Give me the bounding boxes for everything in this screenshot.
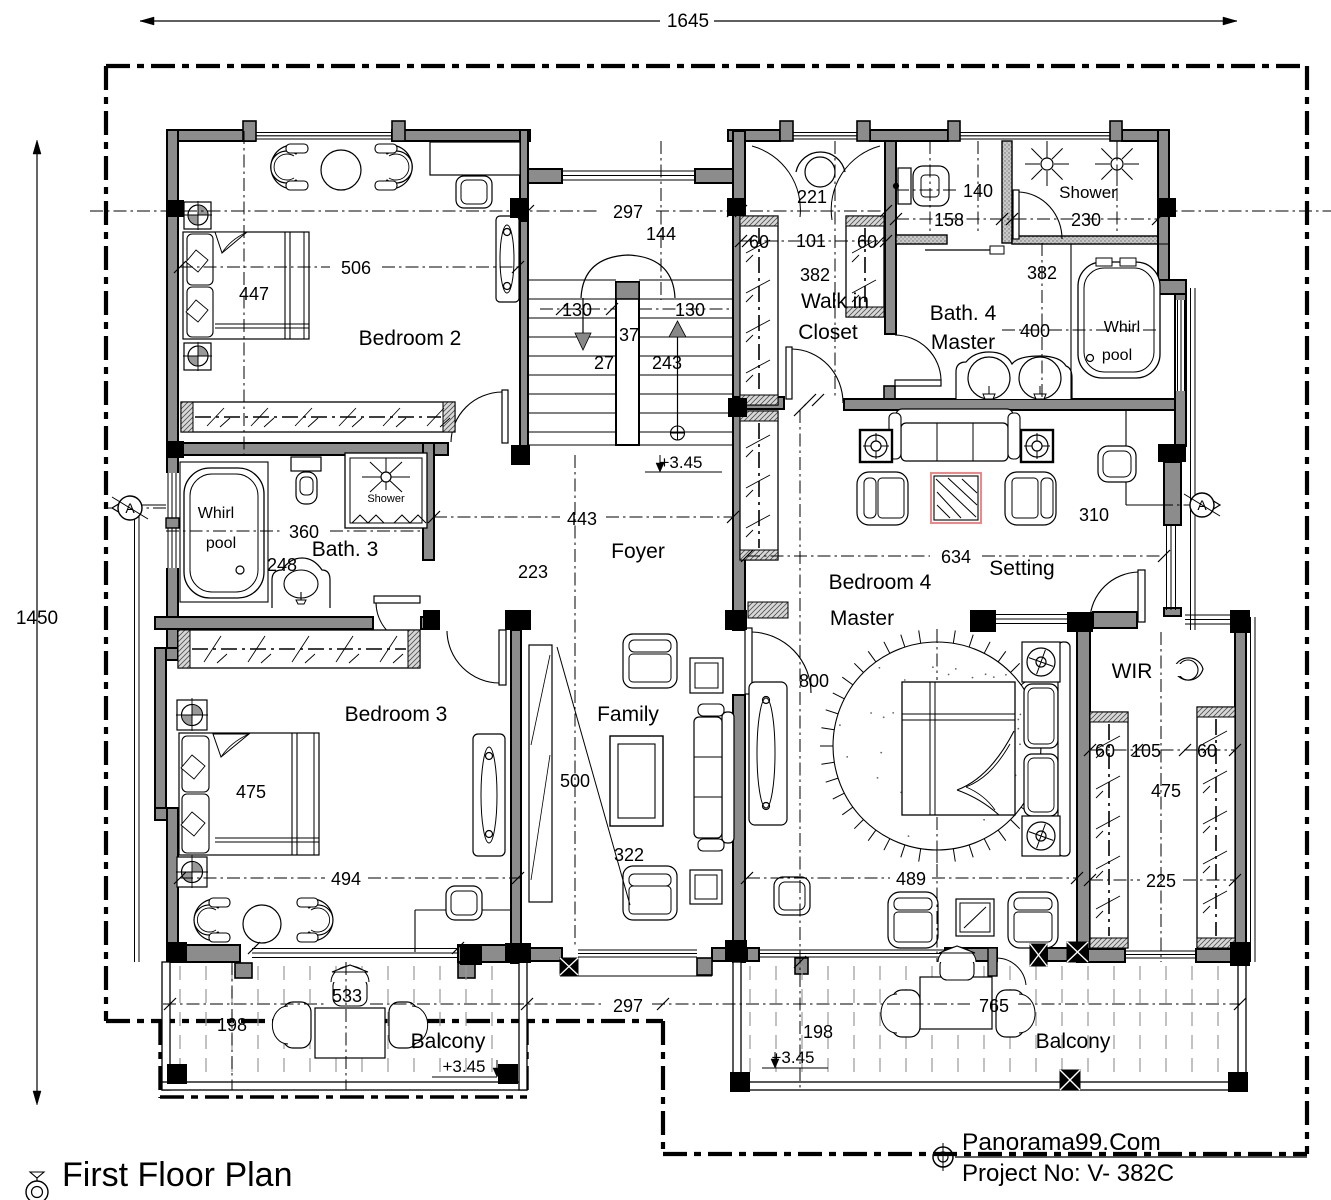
svg-text:475: 475 [236, 782, 266, 802]
svg-text:494: 494 [331, 869, 361, 889]
svg-text:pool: pool [1102, 347, 1132, 364]
svg-text:443: 443 [567, 509, 597, 529]
svg-text:Bedroom 3: Bedroom 3 [345, 703, 448, 726]
svg-text:198: 198 [803, 1022, 833, 1042]
svg-text:297: 297 [613, 202, 643, 222]
svg-text:1645: 1645 [667, 11, 709, 32]
svg-text:+3.45: +3.45 [659, 453, 702, 472]
svg-text:382: 382 [800, 265, 830, 285]
svg-text:221: 221 [797, 187, 827, 207]
svg-text:130: 130 [675, 300, 705, 320]
svg-text:447: 447 [239, 284, 269, 304]
svg-text:Panorama99.Com: Panorama99.Com [962, 1129, 1161, 1156]
svg-text:60: 60 [1095, 741, 1115, 761]
svg-text:60: 60 [857, 232, 877, 252]
svg-text:27: 27 [594, 353, 614, 373]
svg-text:Master: Master [931, 331, 995, 354]
svg-text:+3.45: +3.45 [442, 1057, 485, 1076]
svg-text:+3.45: +3.45 [771, 1048, 814, 1067]
svg-text:Bath. 4: Bath. 4 [930, 302, 997, 325]
svg-text:37: 37 [619, 325, 639, 345]
svg-text:400: 400 [1020, 321, 1050, 341]
svg-text:Setting: Setting [989, 557, 1054, 580]
svg-text:Bedroom 2: Bedroom 2 [359, 327, 462, 350]
svg-text:198: 198 [217, 1015, 247, 1035]
svg-text:297: 297 [613, 996, 643, 1016]
svg-text:230: 230 [1071, 210, 1101, 230]
svg-text:800: 800 [799, 671, 829, 691]
svg-text:1450: 1450 [16, 608, 58, 629]
svg-text:382: 382 [1027, 263, 1057, 283]
svg-text:243: 243 [652, 353, 682, 373]
svg-text:310: 310 [1079, 505, 1109, 525]
svg-text:Master: Master [830, 607, 894, 630]
svg-text:60: 60 [749, 232, 769, 252]
svg-text:225: 225 [1146, 871, 1176, 891]
svg-text:Bedroom 4: Bedroom 4 [829, 571, 932, 594]
svg-text:Foyer: Foyer [611, 540, 665, 563]
svg-text:765: 765 [979, 996, 1009, 1016]
svg-text:pool: pool [206, 535, 236, 552]
svg-text:Shower: Shower [1059, 183, 1117, 202]
svg-text:533: 533 [332, 986, 362, 1006]
svg-text:140: 140 [963, 181, 993, 201]
svg-text:101: 101 [796, 231, 826, 251]
svg-text:634: 634 [941, 547, 971, 567]
svg-text:Balcony: Balcony [411, 1030, 486, 1053]
svg-text:158: 158 [934, 210, 964, 230]
svg-text:Whirl: Whirl [198, 505, 234, 522]
svg-text:223: 223 [518, 562, 548, 582]
svg-text:475: 475 [1151, 781, 1181, 801]
svg-text:Balcony: Balcony [1036, 1030, 1111, 1053]
svg-text:WIR: WIR [1112, 660, 1153, 683]
svg-text:Shower: Shower [367, 493, 405, 505]
svg-text:489: 489 [896, 869, 926, 889]
svg-text:Bath. 3: Bath. 3 [312, 538, 379, 561]
svg-text:248: 248 [267, 555, 297, 575]
svg-text:506: 506 [341, 258, 371, 278]
svg-text:500: 500 [560, 771, 590, 791]
svg-text:Whirl: Whirl [1104, 319, 1140, 336]
svg-text:144: 144 [646, 224, 676, 244]
svg-text:Walk in: Walk in [801, 290, 869, 313]
svg-text:Family: Family [597, 703, 659, 726]
svg-text:322: 322 [614, 845, 644, 865]
svg-text:60: 60 [1197, 741, 1217, 761]
svg-text:130: 130 [562, 300, 592, 320]
svg-text:105: 105 [1131, 741, 1161, 761]
svg-text:First Floor Plan: First Floor Plan [62, 1156, 293, 1194]
svg-text:Project No: V- 382C: Project No: V- 382C [962, 1160, 1174, 1187]
svg-text:Closet: Closet [798, 321, 858, 344]
